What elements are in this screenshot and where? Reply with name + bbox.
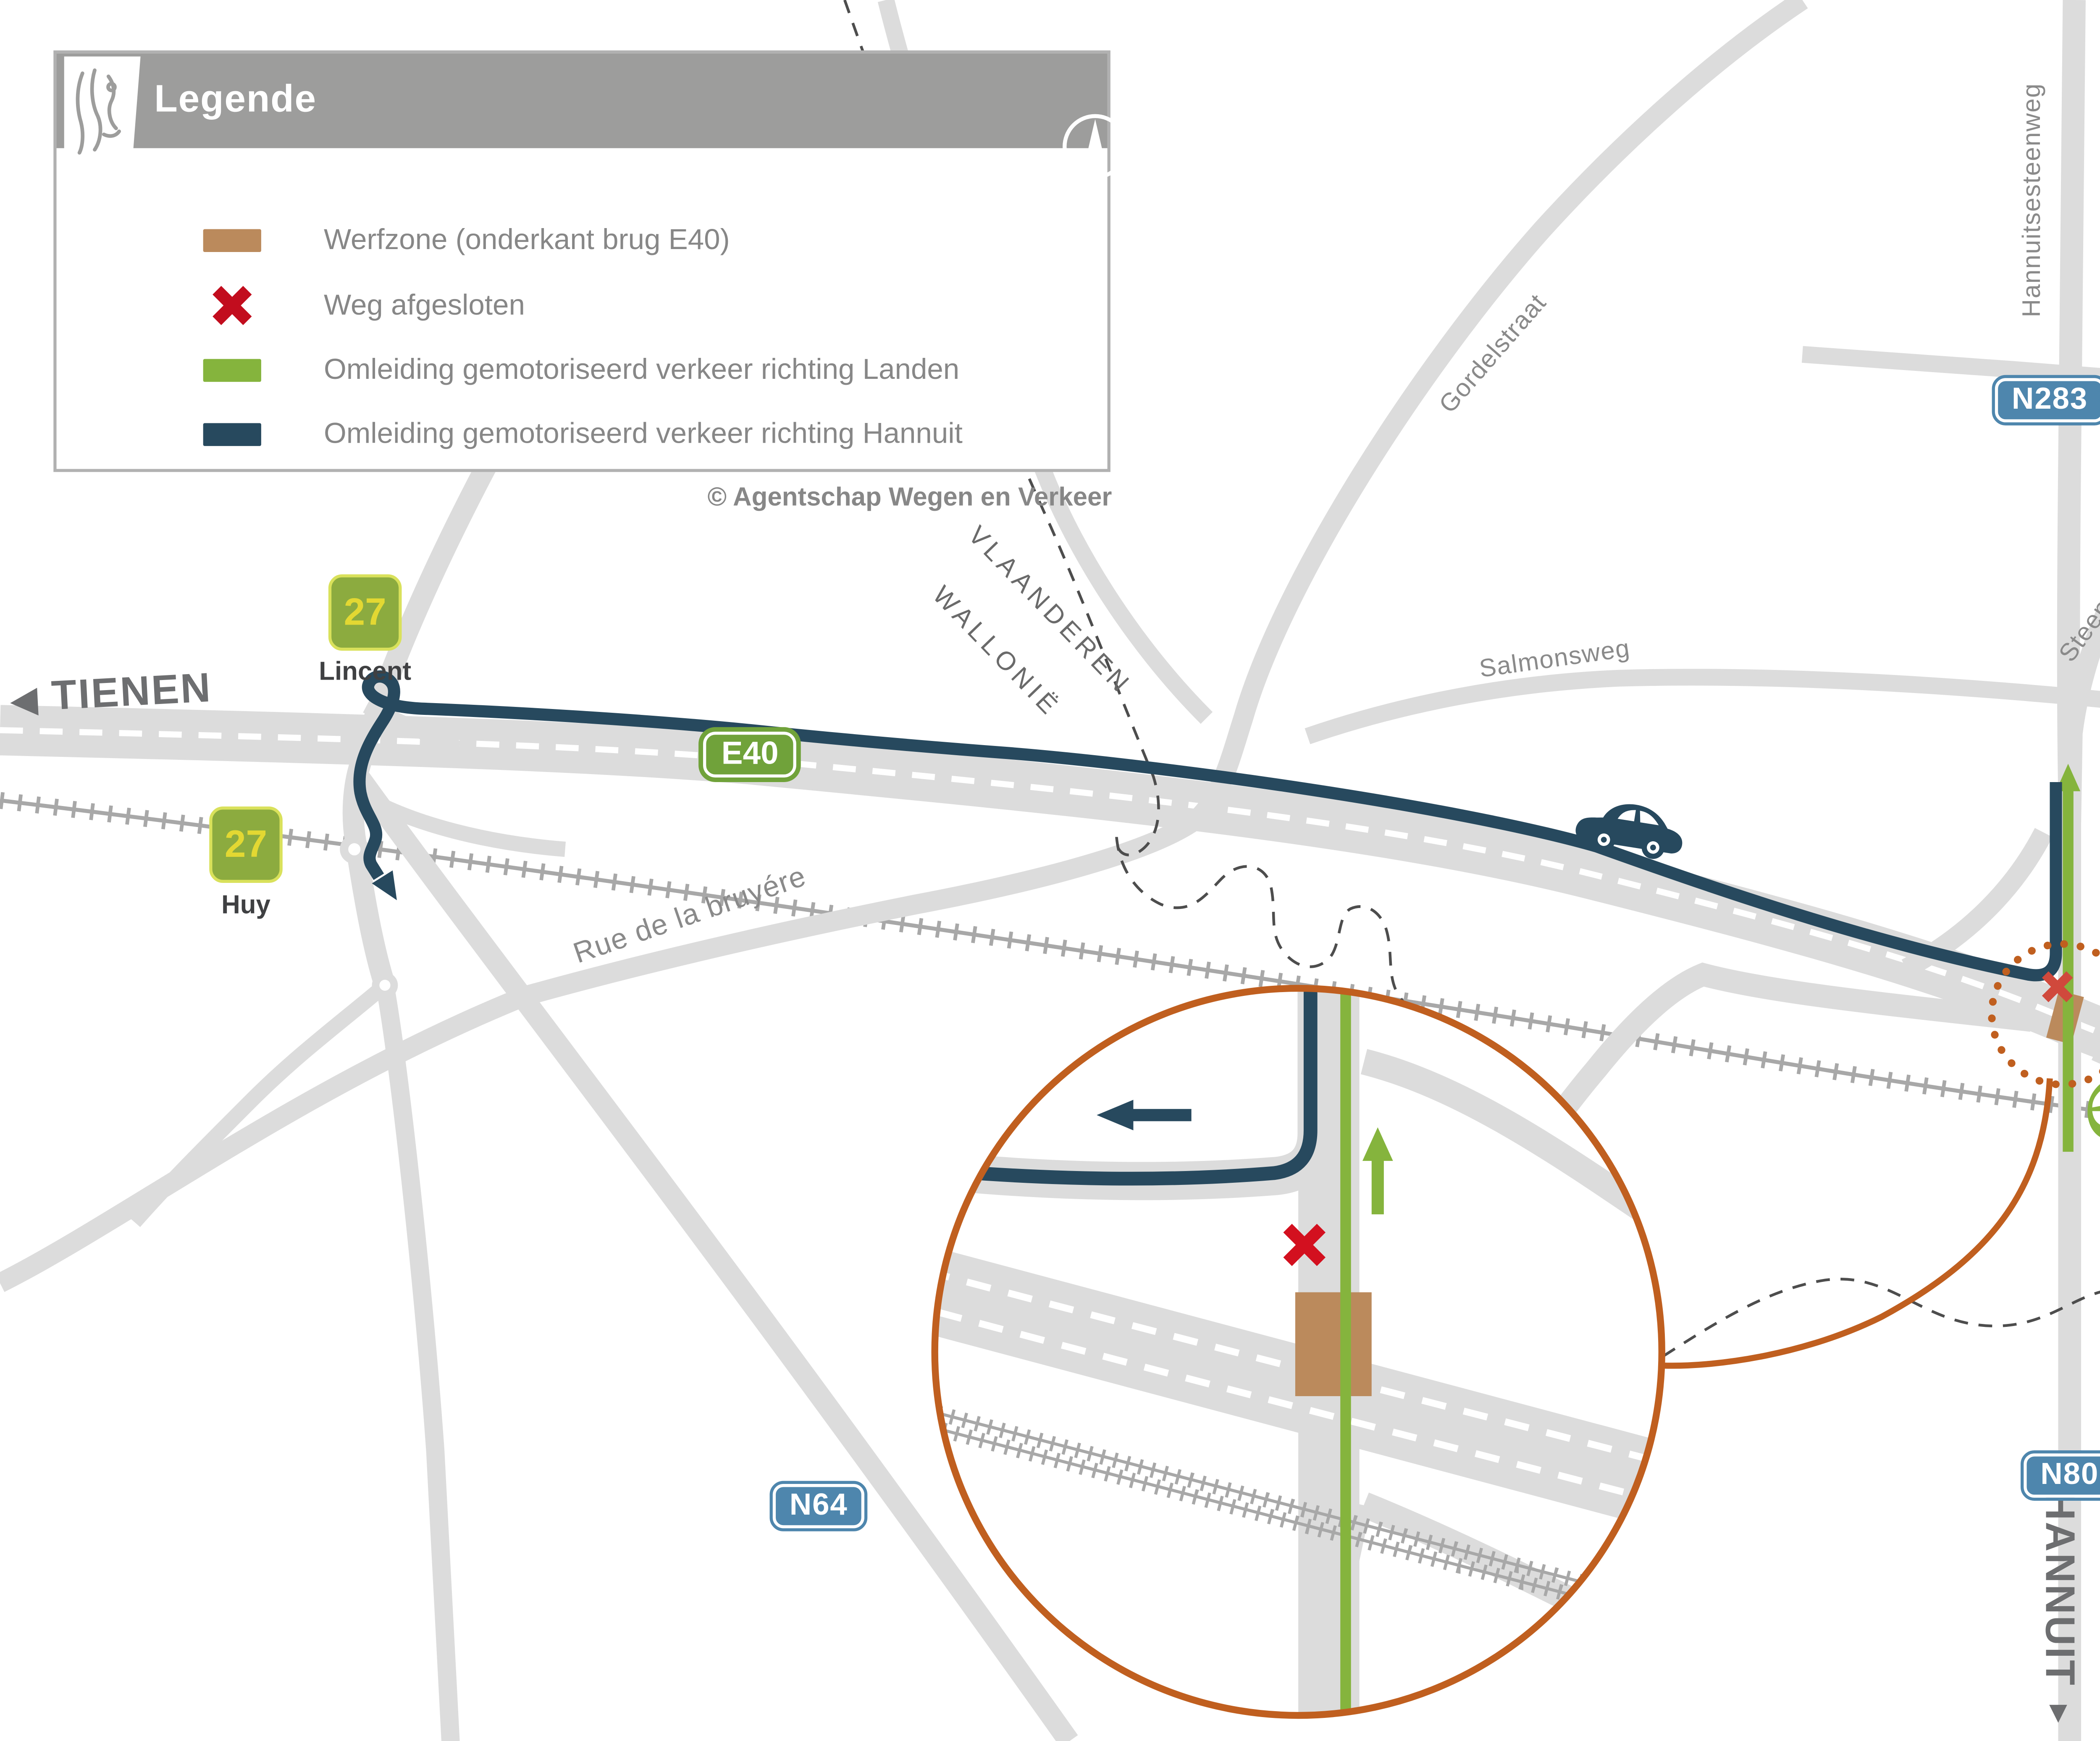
legend-item-weg-afgesloten-label: Weg afgesloten xyxy=(324,290,525,324)
exit-city-huy: Huy xyxy=(221,890,270,921)
legend-panel: Legende N Werfzone (onderkant brug E40) … xyxy=(53,50,1110,472)
direction-hannuit: HANNUIT xyxy=(2035,1491,2083,1687)
direction-landen: LANDEN xyxy=(2090,55,2100,236)
direction-tienen-label: TIENEN xyxy=(50,664,213,719)
road-closed-x-icon xyxy=(209,283,255,328)
street-hannuitsesteenweg: Hannuitsesteenweg xyxy=(2019,83,2047,317)
road-south-from-roundabout xyxy=(385,985,450,1741)
badge-n64: N64 xyxy=(773,1484,865,1528)
flanders-lion-logo xyxy=(61,55,152,183)
legend-item-detour-hannuit-label: Omleiding gemotoriseerd verkeer richting… xyxy=(324,418,963,452)
north-arrow-icon: ▲ xyxy=(2098,5,2100,41)
west-arrow-icon: ◀ xyxy=(10,680,40,719)
detour-landen-swatch xyxy=(203,359,261,382)
badge-e40: E40 xyxy=(703,732,797,777)
roundabout-south-island xyxy=(379,980,390,991)
inset-werfzone xyxy=(1295,1292,1372,1396)
road-salmonsweg xyxy=(1307,677,2100,736)
magnifier-leader-line xyxy=(1663,1079,2050,1366)
compass-icon: N xyxy=(1053,104,1138,189)
copyright-notice: © Agentschap Wegen en Verkeer xyxy=(684,483,1112,513)
badge-n283: N283 xyxy=(1995,378,2100,422)
map-stage: ◀ TIENEN ▲ LANDEN LUIK ▶ HANNUIT ▼ Hannu… xyxy=(0,0,2100,1741)
south-arrow-icon: ▼ xyxy=(2043,1696,2075,1732)
legend-item-werfzone-label: Werfzone (onderkant brug E40) xyxy=(324,225,730,258)
exit-badge-27-lincent: 27 xyxy=(328,574,402,651)
detour-hannuit-swatch xyxy=(203,423,261,446)
badge-n80: N80 xyxy=(2024,1453,2100,1497)
road-southwest-connector xyxy=(134,985,385,1222)
legend-item-detour-landen-label: Omleiding gemotoriseerd verkeer richting… xyxy=(324,355,959,388)
exit-city-lincent: Lincent xyxy=(319,657,411,688)
boundary-vlaanderen-wallonie-east xyxy=(1622,1279,2100,1469)
detour-map-page: ◀ TIENEN ▲ LANDEN LUIK ▶ HANNUIT ▼ Hannu… xyxy=(0,0,2100,1741)
exit-badge-27-huy: 27 xyxy=(209,806,283,883)
roundabout-north-island xyxy=(348,843,360,855)
svg-text:N: N xyxy=(1087,156,1103,180)
legend-title: Legende xyxy=(154,78,317,122)
werfzone-swatch xyxy=(203,229,261,252)
